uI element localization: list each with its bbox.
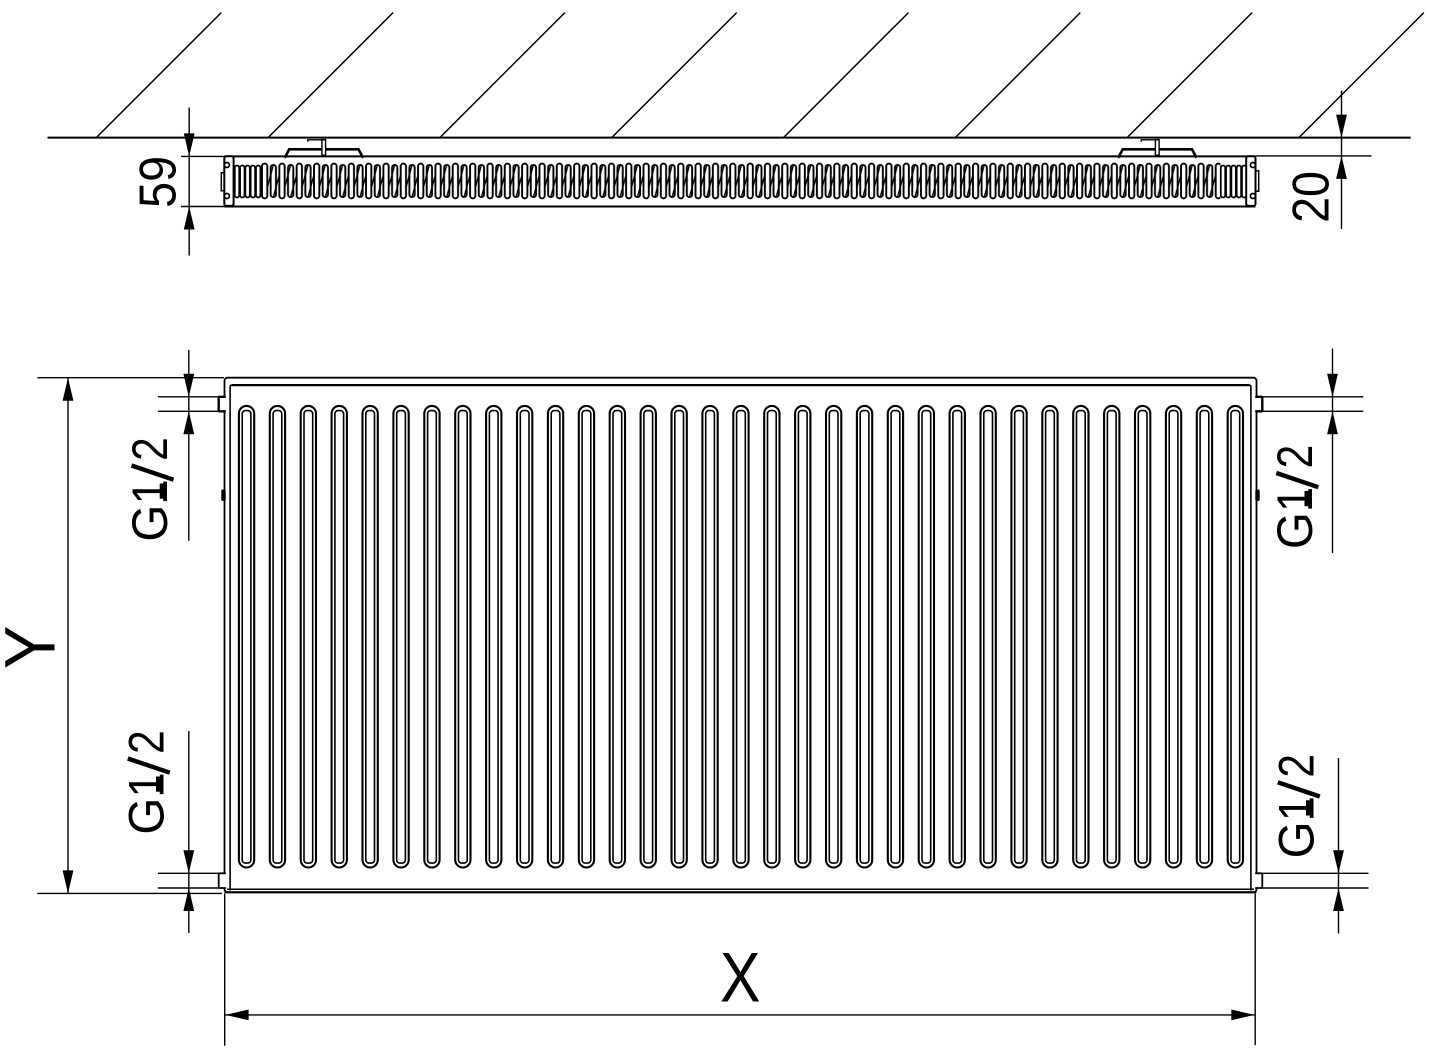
svg-text:59: 59	[129, 156, 187, 208]
svg-text:2: 2	[1267, 445, 1323, 469]
svg-text:1: 1	[123, 479, 179, 504]
svg-text:2: 2	[122, 437, 178, 461]
svg-text:G: G	[123, 505, 178, 542]
svg-text:G: G	[1268, 512, 1323, 549]
svg-text:Y: Y	[0, 626, 70, 670]
svg-text:2: 2	[118, 730, 174, 754]
svg-text:G: G	[119, 798, 174, 835]
svg-text:20: 20	[1282, 171, 1340, 223]
svg-text:1: 1	[119, 772, 175, 797]
svg-text:1: 1	[1269, 796, 1325, 821]
svg-text:G: G	[1269, 821, 1324, 858]
svg-text:X: X	[720, 939, 761, 1017]
svg-text:1: 1	[1268, 487, 1324, 512]
svg-text:2: 2	[1268, 754, 1324, 778]
